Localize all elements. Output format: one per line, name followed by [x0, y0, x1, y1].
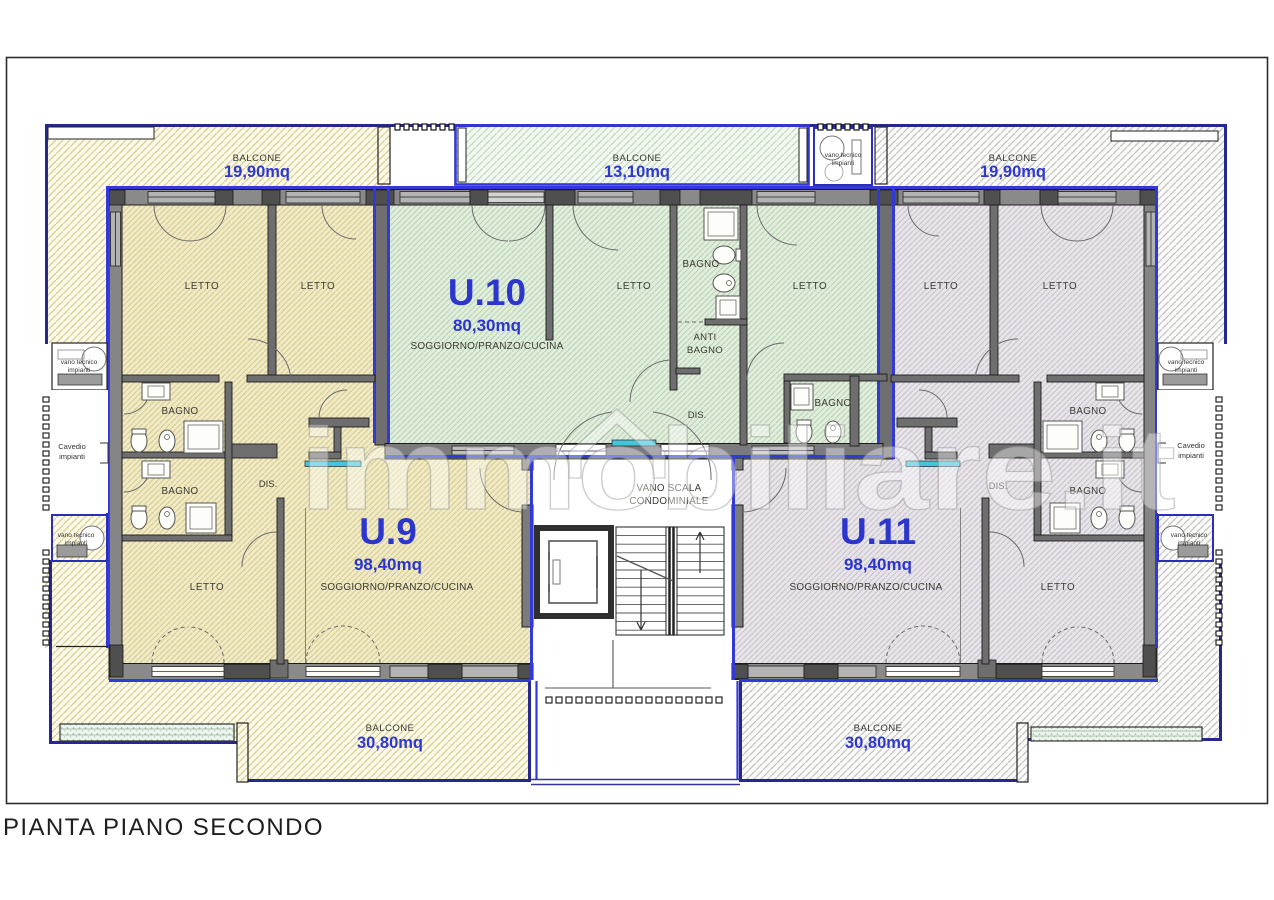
svg-text:BAGNO: BAGNO [683, 259, 720, 270]
svg-text:impianti: impianti [832, 160, 854, 167]
svg-text:SOGGIORNO/PRANZO/CUCINA: SOGGIORNO/PRANZO/CUCINA [790, 582, 943, 593]
svg-text:SOGGIORNO/PRANZO/CUCINA: SOGGIORNO/PRANZO/CUCINA [321, 582, 474, 593]
svg-text:LETTO: LETTO [1043, 281, 1077, 292]
svg-text:BAGNO: BAGNO [162, 486, 199, 497]
svg-text:19,90mq: 19,90mq [980, 163, 1046, 181]
svg-text:vano tecnico: vano tecnico [58, 532, 95, 539]
svg-text:impianti: impianti [68, 367, 90, 374]
svg-text:vano tecnico: vano tecnico [61, 359, 98, 366]
svg-text:BALCONE: BALCONE [854, 723, 903, 734]
svg-text:Cavedio: Cavedio [1177, 441, 1205, 450]
svg-text:LETTO: LETTO [190, 582, 224, 593]
svg-text:impianti: impianti [65, 540, 87, 547]
svg-text:LETTO: LETTO [185, 281, 219, 292]
svg-text:DIS.: DIS. [259, 479, 277, 490]
svg-text:immobiliare.it: immobiliare.it [300, 404, 1176, 534]
svg-text:impianti: impianti [1175, 367, 1197, 374]
svg-text:98,40mq: 98,40mq [844, 555, 912, 574]
svg-text:80,30mq: 80,30mq [453, 316, 521, 335]
svg-text:LETTO: LETTO [924, 281, 958, 292]
svg-text:impianti: impianti [1178, 451, 1204, 460]
svg-text:SOGGIORNO/PRANZO/CUCINA: SOGGIORNO/PRANZO/CUCINA [411, 341, 564, 352]
svg-text:BAGNO: BAGNO [687, 345, 723, 356]
svg-text:LETTO: LETTO [617, 281, 651, 292]
svg-text:vano tecnico: vano tecnico [1168, 359, 1205, 366]
svg-text:98,40mq: 98,40mq [354, 555, 422, 574]
svg-text:13,10mq: 13,10mq [604, 163, 670, 181]
svg-text:LETTO: LETTO [1041, 582, 1075, 593]
svg-text:vano tecnico: vano tecnico [1171, 532, 1208, 539]
svg-text:BALCONE: BALCONE [366, 723, 415, 734]
svg-text:PIANTA PIANO SECONDO: PIANTA PIANO SECONDO [3, 814, 324, 841]
svg-text:30,80mq: 30,80mq [845, 734, 911, 752]
svg-text:BAGNO: BAGNO [162, 406, 199, 417]
svg-text:LETTO: LETTO [793, 281, 827, 292]
svg-text:U.10: U.10 [448, 272, 526, 313]
svg-text:impianti: impianti [59, 452, 85, 461]
svg-text:vano tecnico: vano tecnico [825, 152, 862, 159]
svg-text:LETTO: LETTO [301, 281, 335, 292]
svg-text:impianti: impianti [1178, 540, 1200, 547]
svg-text:19,90mq: 19,90mq [224, 163, 290, 181]
svg-text:30,80mq: 30,80mq [357, 734, 423, 752]
svg-text:Cavedio: Cavedio [58, 442, 86, 451]
svg-text:ANTI: ANTI [693, 332, 716, 343]
